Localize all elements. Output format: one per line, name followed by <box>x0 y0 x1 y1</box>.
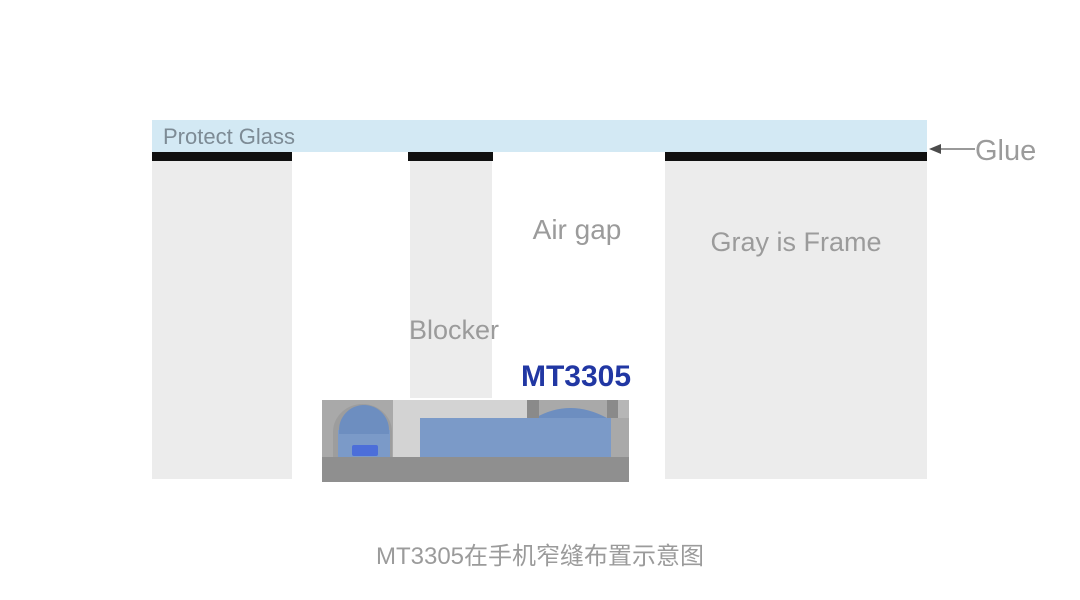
frame-right-column <box>665 161 927 479</box>
diagram-canvas: Protect Glass Glue Air gap Gray is Frame… <box>0 0 1080 600</box>
module-post-right <box>607 400 618 418</box>
glue-arrow-head <box>929 144 941 154</box>
blocker-column <box>410 161 492 398</box>
air-gap-label: Air gap <box>533 214 622 246</box>
module-base <box>322 457 629 482</box>
frame-left-column <box>152 161 292 479</box>
protect-glass-label: Protect Glass <box>163 120 295 152</box>
module-post-left <box>527 400 539 418</box>
module-right-corner <box>618 400 629 418</box>
glue-arrow-icon <box>928 141 976 157</box>
glue-strip-right <box>665 152 927 161</box>
module-middle-gap <box>393 400 420 457</box>
caption: MT3305在手机窄缝布置示意图 <box>376 536 704 571</box>
glue-label: Glue <box>975 135 1036 168</box>
frame-label: Gray is Frame <box>710 227 881 258</box>
glue-strip-middle <box>408 152 493 161</box>
detector-chip <box>420 418 611 457</box>
sensor-model-label: MT3305 <box>521 360 631 394</box>
sensor-module-illustration <box>322 400 629 482</box>
blocker-label: Blocker <box>409 315 499 346</box>
protect-glass-layer: Protect Glass <box>152 120 927 152</box>
glue-strip-left <box>152 152 292 161</box>
module-top-strip <box>420 400 527 418</box>
emitter-die <box>352 445 378 456</box>
